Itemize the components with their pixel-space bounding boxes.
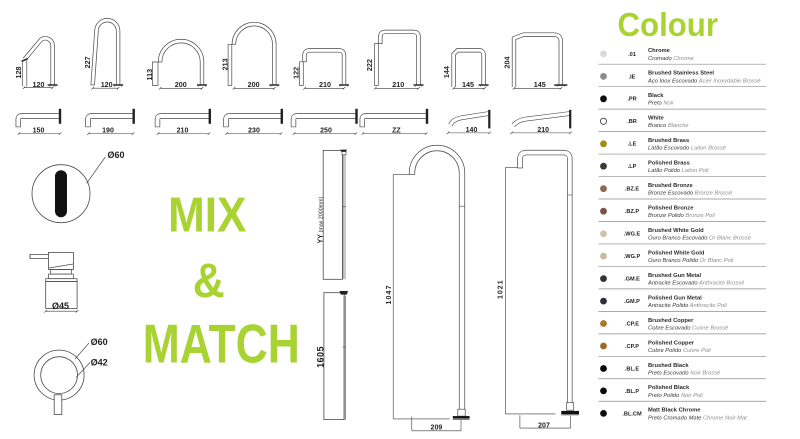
svg-text:200: 200 <box>248 80 260 89</box>
svg-text:1021: 1021 <box>498 280 505 299</box>
svg-text:227: 227 <box>83 56 92 68</box>
svg-text:Polished Copper: Polished Copper <box>648 340 695 346</box>
svg-text:Bronze Escovado Bronze Brossé: Bronze Escovado Bronze Brossé <box>648 191 732 197</box>
svg-text:&: & <box>193 255 225 308</box>
svg-text:Brushed White Gold: Brushed White Gold <box>648 228 704 234</box>
svg-text:Polished White Gold: Polished White Gold <box>648 250 705 256</box>
svg-text:.BL.CM: .BL.CM <box>622 411 642 417</box>
svg-text:204: 204 <box>502 57 511 69</box>
svg-text:113: 113 <box>145 69 154 81</box>
svg-text:120: 120 <box>33 80 45 89</box>
svg-text:.GM.E: .GM.E <box>624 277 640 283</box>
svg-text:Brushed Bronze: Brushed Bronze <box>648 183 694 189</box>
svg-text:210: 210 <box>537 127 549 134</box>
svg-text:Preto Escovado Noir Brossé: Preto Escovado Noir Brossé <box>648 370 720 376</box>
svg-text:145: 145 <box>462 80 474 89</box>
svg-text:Latão Polido Laiton Poli: Latão Polido Laiton Poli <box>648 168 709 174</box>
svg-text:120: 120 <box>101 80 113 89</box>
svg-text:Brushed Brass: Brushed Brass <box>648 138 689 144</box>
svg-text:Ø60: Ø60 <box>91 337 108 347</box>
svg-text:.GM.P: .GM.P <box>624 299 640 305</box>
svg-text:Polished Black: Polished Black <box>648 385 690 391</box>
svg-text:Polished Gun Metal: Polished Gun Metal <box>648 295 702 301</box>
svg-text:210: 210 <box>392 80 404 89</box>
svg-text:Ø45: Ø45 <box>52 301 69 311</box>
svg-text:Antracite Escovado Anthracite: Antracite Escovado Anthracite Brossé <box>647 281 744 287</box>
svg-text:Brushed Copper: Brushed Copper <box>648 318 694 324</box>
svg-text:122: 122 <box>292 67 301 79</box>
svg-text:Preto Noir: Preto Noir <box>648 101 675 107</box>
svg-text:144: 144 <box>442 66 451 78</box>
svg-text:.BZ.P: .BZ.P <box>625 209 640 215</box>
svg-text:Brushed Stainless Steel: Brushed Stainless Steel <box>648 71 714 77</box>
svg-text:.BL.E: .BL.E <box>625 366 640 372</box>
svg-text:Branco Blanche: Branco Blanche <box>648 123 689 129</box>
svg-text:.BZ.E: .BZ.E <box>625 187 640 193</box>
svg-text:210: 210 <box>319 80 331 89</box>
svg-text:1047: 1047 <box>386 285 393 304</box>
svg-text:Ouro Branco Polido Or Blanc Po: Ouro Branco Polido Or Blanc Poli <box>648 258 734 264</box>
svg-text:Brushed Gun Metal: Brushed Gun Metal <box>648 273 702 279</box>
svg-text:190: 190 <box>102 127 114 134</box>
svg-text:Aço Inox Escovado Acier Inoxyd: Aço Inox Escovado Acier Inoxydable Bross… <box>647 78 761 84</box>
svg-text:128: 128 <box>14 67 23 79</box>
svg-text:.PR: .PR <box>627 97 636 103</box>
svg-text:Cobre Polido Cuivre Poli: Cobre Polido Cuivre Poli <box>648 348 711 354</box>
svg-text:.WG.P: .WG.P <box>624 254 641 260</box>
svg-text:222: 222 <box>365 59 374 71</box>
svg-text:145: 145 <box>534 80 546 89</box>
svg-text:Colour: Colour <box>618 6 719 43</box>
svg-text:ZZ: ZZ <box>392 127 401 134</box>
svg-text:Preto Polido Noir Poli: Preto Polido Noir Poli <box>648 393 703 399</box>
svg-text:Ø42: Ø42 <box>91 358 108 368</box>
svg-text:Ø60: Ø60 <box>108 150 125 160</box>
svg-text:YY (max 2000mm): YY (max 2000mm) <box>318 196 325 243</box>
svg-text:Cobre Escovado Cuivre Brossé: Cobre Escovado Cuivre Brossé <box>648 325 728 331</box>
svg-text:213: 213 <box>220 58 229 70</box>
svg-text:Matt Black Chrome: Matt Black Chrome <box>648 408 701 414</box>
svg-text:200: 200 <box>175 80 187 89</box>
svg-text:Latão Escovado Laiton Brossé: Latão Escovado Laiton Brossé <box>648 146 726 152</box>
svg-text:Black: Black <box>648 93 664 99</box>
svg-text:140: 140 <box>466 127 478 134</box>
svg-text:Polished Brass: Polished Brass <box>648 161 690 167</box>
svg-text:Cromado Chrome: Cromado Chrome <box>648 56 694 62</box>
svg-text:.CP.E: .CP.E <box>625 321 639 327</box>
svg-text:.BL.P: .BL.P <box>625 389 640 395</box>
svg-text:.WG.E: .WG.E <box>624 232 641 238</box>
svg-text:Bronze Polido Bronze Poli: Bronze Polido Bronze Poli <box>648 213 716 219</box>
svg-text:.IE: .IE <box>629 74 636 80</box>
svg-text:207: 207 <box>538 422 550 429</box>
svg-text:230: 230 <box>248 127 260 134</box>
svg-text:150: 150 <box>33 127 45 134</box>
svg-text:Chrome: Chrome <box>648 48 671 54</box>
svg-text:250: 250 <box>320 127 332 134</box>
svg-text:Preto Cromado Mate Chrome Noir: Preto Cromado Mate Chrome Noir Mat <box>648 415 747 421</box>
svg-text:.BR: .BR <box>627 119 637 125</box>
svg-text:1605: 1605 <box>315 346 325 368</box>
svg-text:Antracite Polido Anthracite Po: Antracite Polido Anthracite Poli <box>647 303 727 309</box>
svg-text:.01: .01 <box>628 52 636 58</box>
svg-text:Brushed Black: Brushed Black <box>648 363 689 369</box>
svg-text:209: 209 <box>431 425 443 432</box>
svg-text:MATCH: MATCH <box>143 313 300 375</box>
svg-text:210: 210 <box>177 127 189 134</box>
svg-text:Ouro Branco Escovado Or Blanc: Ouro Branco Escovado Or Blanc Brossé <box>648 236 751 242</box>
svg-text:Polished Bronze: Polished Bronze <box>648 206 694 212</box>
svg-text:.LE: .LE <box>628 142 637 148</box>
svg-text:White: White <box>648 116 665 122</box>
svg-text:.CP.P: .CP.P <box>625 344 639 350</box>
svg-text:MIX: MIX <box>168 188 247 243</box>
svg-text:.LP: .LP <box>628 164 637 170</box>
